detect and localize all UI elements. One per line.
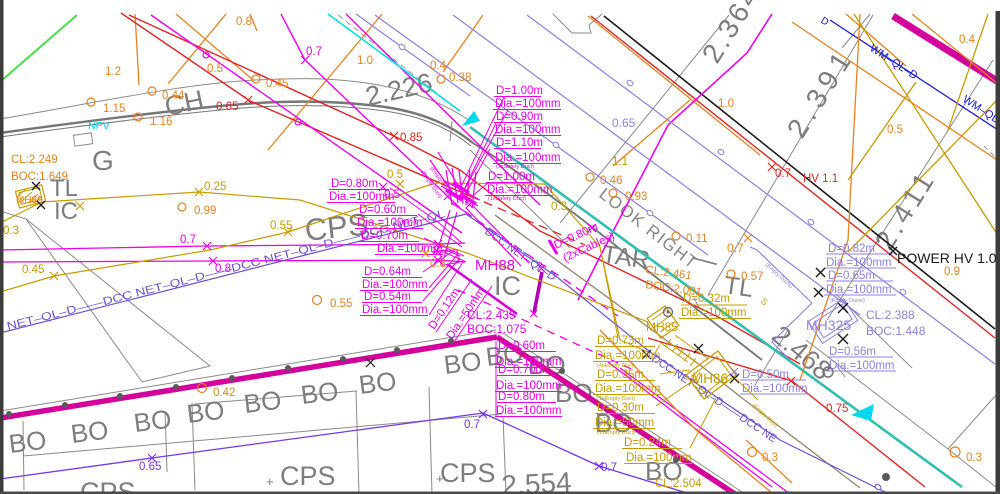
svg-text:0.42: 0.42 — [213, 387, 235, 399]
svg-text:Dia.=100mm: Dia.=100mm — [496, 405, 562, 417]
svg-text:Dia.=100mm: Dia.=100mm — [495, 124, 561, 136]
svg-text:0.4: 0.4 — [959, 34, 976, 46]
svg-text:BO: BO — [132, 404, 173, 438]
svg-text:1.15: 1.15 — [103, 103, 125, 115]
svg-text:0.25: 0.25 — [204, 181, 226, 193]
svg-text:CL:2.388: CL:2.388 — [866, 308, 915, 322]
svg-text:BOC:1.448: BOC:1.448 — [866, 324, 926, 338]
svg-text:IC: IC — [494, 271, 521, 301]
svg-text:CPS: CPS — [440, 458, 496, 488]
svg-text:0.3: 0.3 — [762, 452, 778, 464]
svg-text:BOC:1.075: BOC:1.075 — [467, 322, 527, 336]
svg-text:D=0.82m: D=0.82m — [828, 243, 875, 255]
svg-text:NPV: NPV — [88, 120, 110, 132]
svg-text:1.2: 1.2 — [105, 66, 121, 78]
svg-text:CL:2.504: CL:2.504 — [655, 478, 702, 490]
svg-text:D=0.64m: D=0.64m — [364, 266, 411, 278]
svg-text:Dia.=100mm: Dia.=100mm — [362, 304, 428, 316]
svg-text:Dia.=100mm: Dia.=100mm — [362, 279, 428, 291]
svg-text:0.3: 0.3 — [966, 452, 982, 464]
svg-text:G: G — [92, 145, 114, 176]
svg-text:CPS: CPS — [280, 461, 336, 491]
svg-text:BO: BO — [69, 415, 110, 449]
svg-text:0.45: 0.45 — [22, 264, 44, 276]
svg-text:BO: BO — [7, 425, 48, 459]
svg-text:BO: BO — [185, 395, 226, 429]
svg-text:0.65: 0.65 — [216, 101, 238, 113]
svg-text:0.7: 0.7 — [180, 234, 196, 246]
svg-text:MH325: MH325 — [806, 317, 851, 333]
svg-text:MH86: MH86 — [692, 371, 728, 386]
svg-text:Dia.=100mm: Dia.=100mm — [495, 152, 561, 164]
svg-text:+: + — [266, 474, 274, 489]
svg-text:+: + — [436, 471, 444, 486]
svg-text:0.7: 0.7 — [775, 168, 791, 180]
svg-text:POWER HV 1.0: POWER HV 1.0 — [897, 250, 997, 266]
svg-text:0.7: 0.7 — [601, 462, 617, 474]
svg-text:D=1.10m: D=1.10m — [496, 137, 543, 149]
svg-text:0.7: 0.7 — [727, 241, 744, 255]
svg-text:CL:2.249: CL:2.249 — [11, 154, 58, 166]
svg-text:0.5: 0.5 — [387, 169, 403, 181]
svg-text:D=0.50m: D=0.50m — [742, 369, 789, 381]
svg-text:D=0.73m: D=0.73m — [597, 335, 644, 347]
svg-text:0.65: 0.65 — [612, 116, 636, 130]
svg-text:Dia.=50mm: Dia.=50mm — [595, 417, 654, 429]
svg-text:0.38: 0.38 — [449, 72, 471, 84]
svg-text:Dia.=100mm: Dia.=100mm — [377, 243, 443, 255]
svg-text:D=0.65m: D=0.65m — [828, 270, 875, 282]
svg-text:D=0.56m: D=0.56m — [829, 346, 876, 358]
svg-text:0.3: 0.3 — [3, 225, 19, 237]
svg-text:0.5: 0.5 — [207, 63, 223, 75]
svg-text:0.65: 0.65 — [139, 461, 161, 473]
svg-text:D=0.70m: D=0.70m — [498, 364, 545, 376]
svg-text:CPS: CPS — [80, 477, 136, 494]
svg-text:0.75: 0.75 — [826, 403, 848, 415]
svg-text:1.16: 1.16 — [150, 116, 172, 128]
svg-text:0.9: 0.9 — [944, 266, 960, 278]
svg-text:0.85: 0.85 — [400, 132, 422, 144]
svg-text:D=0.60m: D=0.60m — [359, 204, 406, 216]
svg-text:1.0: 1.0 — [357, 55, 373, 67]
svg-text:0.8: 0.8 — [236, 16, 252, 28]
svg-text:0.93: 0.93 — [625, 191, 647, 203]
svg-text:CL:2.435: CL:2.435 — [467, 308, 516, 322]
svg-text:D=0.60m: D=0.60m — [498, 340, 545, 352]
svg-text:D=0.80m: D=0.80m — [331, 178, 378, 190]
svg-text:0.3: 0.3 — [551, 201, 567, 213]
svg-text:Dia.=100mm: Dia.=100mm — [826, 257, 892, 269]
svg-text:1.1: 1.1 — [612, 156, 628, 168]
svg-text:BO: BO — [357, 366, 398, 400]
svg-text:BOC:1.649: BOC:1.649 — [11, 171, 68, 183]
svg-text:Dia.=100mm: Dia.=100mm — [357, 217, 423, 229]
svg-text:D=1.00m: D=1.00m — [488, 171, 535, 183]
svg-text:D=0.70m: D=0.70m — [361, 230, 408, 242]
svg-text:IC: IC — [54, 198, 78, 225]
svg-text:2.554: 2.554 — [501, 466, 573, 494]
svg-text:Dia.=100mm: Dia.=100mm — [626, 452, 692, 464]
svg-text:0.57: 0.57 — [741, 271, 763, 283]
svg-text:0.5: 0.5 — [887, 124, 903, 136]
svg-text:0.55: 0.55 — [330, 298, 352, 310]
svg-text:0.11: 0.11 — [686, 233, 708, 245]
svg-text:D=0.90m: D=0.90m — [496, 111, 543, 123]
svg-text:Dia.=100mm: Dia.=100mm — [742, 383, 808, 395]
svg-text:Dia.=100mm: Dia.=100mm — [495, 98, 561, 110]
svg-text:D=0.80m: D=0.80m — [498, 391, 545, 403]
svg-text:BO: BO — [442, 346, 483, 380]
svg-text:Dia.=100mm: Dia.=100mm — [829, 360, 895, 372]
svg-text:0.46: 0.46 — [600, 175, 622, 187]
svg-text:HV 1.1: HV 1.1 — [803, 173, 838, 185]
svg-text:(1xSafety Duct): (1xSafety Duct) — [496, 164, 534, 170]
svg-text:0.8: 0.8 — [215, 263, 231, 275]
svg-text:Dia.=100mm: Dia.=100mm — [826, 284, 892, 296]
svg-text:0.44: 0.44 — [162, 90, 185, 102]
svg-text:D=1.00m: D=1.00m — [496, 85, 543, 97]
svg-text:BO: BO — [299, 376, 340, 410]
svg-text:D=0.54m: D=0.54m — [364, 291, 411, 303]
svg-text:Dia.=100mm: Dia.=100mm — [595, 350, 661, 362]
svg-text:0.45: 0.45 — [266, 78, 288, 90]
svg-text:Dia.=100mm: Dia.=100mm — [595, 383, 661, 395]
svg-text:MH89: MH89 — [16, 195, 43, 206]
svg-text:0.99: 0.99 — [194, 205, 216, 217]
svg-text:D=0.30m: D=0.30m — [597, 402, 644, 414]
svg-text:MH85: MH85 — [646, 320, 678, 334]
svg-text:BO: BO — [242, 385, 283, 419]
svg-text:D=0.35m: D=0.35m — [597, 369, 644, 381]
svg-text:(1xSafety Duct): (1xSafety Duct) — [488, 196, 526, 202]
svg-text:Dia.=100mm: Dia.=100mm — [487, 184, 553, 196]
svg-text:0.7: 0.7 — [464, 419, 480, 431]
svg-text:MH88: MH88 — [475, 257, 515, 274]
svg-text:0.4: 0.4 — [430, 60, 447, 72]
svg-text:(1xEmpty Duct): (1xEmpty Duct) — [597, 430, 635, 436]
svg-text:Dia.=100mm: Dia.=100mm — [681, 307, 747, 319]
svg-text:D=0.24m: D=0.24m — [624, 437, 671, 449]
svg-text:1.0: 1.0 — [718, 98, 734, 110]
